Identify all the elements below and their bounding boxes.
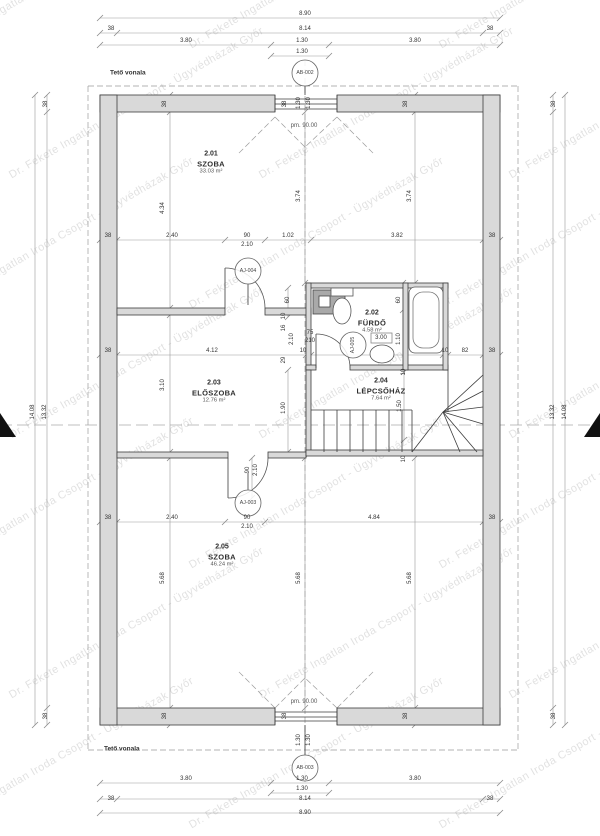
dimension-label: 90 xyxy=(245,467,251,474)
room-name: LÉPCSŐHÁZ xyxy=(357,386,406,395)
dimension-label: 3.74 xyxy=(296,190,302,202)
dimension-label: 10 xyxy=(281,313,287,320)
dimension-label: 1.02 xyxy=(282,233,294,239)
room-area: 7.64 m² xyxy=(357,395,406,402)
dimension-label: 210 xyxy=(305,338,315,344)
dimension-label: 1.30 xyxy=(296,97,302,109)
dimension-label: 1.30 xyxy=(306,97,312,109)
dimension-label: 38 xyxy=(489,233,496,239)
dimension-label: 1.90 xyxy=(281,402,287,414)
room-area: 33.03 m² xyxy=(197,168,225,175)
room-number: 2.02 xyxy=(358,309,386,318)
level-label: pm. 90.00 xyxy=(291,699,318,705)
dimension-label: 1.30 xyxy=(296,734,302,746)
dimension-label: 38 xyxy=(282,101,288,108)
dimension-label: 14.08 xyxy=(562,404,568,419)
floor-plan-page: { "title": "Emeleti alaprajz", "watermar… xyxy=(0,0,600,836)
room-label-2-04: 2.04LÉPCSŐHÁZ7.64 m² xyxy=(357,377,406,402)
dimension-label: 38 xyxy=(489,515,496,521)
dimension-label: 3.80 xyxy=(409,776,421,782)
dimension-label: 3.00 xyxy=(375,335,387,341)
dimension-label: 5.68 xyxy=(296,572,302,584)
room-label-2-02: 2.02FÜRDŐ4.58 m² xyxy=(358,309,386,334)
dimension-label: 38 xyxy=(403,101,409,108)
dimension-label: 60 xyxy=(396,297,402,304)
dimension-label: 3.82 xyxy=(391,233,403,239)
dimension-label: 2.10 xyxy=(253,464,259,476)
dimension-label: 38 xyxy=(105,233,112,239)
dimension-label: 3.74 xyxy=(407,190,413,202)
dimension-label: 38 xyxy=(282,713,288,720)
dimension-label: 3.80 xyxy=(180,776,192,782)
dimension-label: 38 xyxy=(108,796,115,802)
tag-label: AB-003 xyxy=(296,765,313,771)
room-number: 2.01 xyxy=(197,150,225,159)
dimension-label: 1.30 xyxy=(306,734,312,746)
dimension-label: 8.90 xyxy=(299,810,311,816)
room-number: 2.03 xyxy=(192,379,236,388)
dimension-label: 75 xyxy=(307,330,314,336)
dimension-label: 3.80 xyxy=(180,38,192,44)
dimension-label: 1.30 xyxy=(296,49,308,55)
dimension-label: 38 xyxy=(105,348,112,354)
dimension-label: 38 xyxy=(105,515,112,521)
dimension-label: 8.90 xyxy=(299,11,311,17)
dimension-label: 38 xyxy=(551,713,557,720)
dimension-label: 2.10 xyxy=(241,524,253,530)
dimension-label: 10 xyxy=(300,348,307,354)
dimension-label: 10 xyxy=(442,348,449,354)
dimension-label: 5.68 xyxy=(160,572,166,584)
dimension-label: 38 xyxy=(487,796,494,802)
dimension-label: 82 xyxy=(462,348,469,354)
dimension-label: 1.30 xyxy=(296,786,308,792)
dimension-label: 38 xyxy=(162,713,168,720)
room-label-2-01: 2.01SZOBA33.03 m² xyxy=(197,150,225,175)
dimension-label: 29 xyxy=(281,357,287,364)
dimension-label: 38 xyxy=(551,101,557,108)
dimension-label: 3.80 xyxy=(409,38,421,44)
dimension-label: 4.12 xyxy=(206,348,218,354)
dimension-label: 10 xyxy=(401,369,407,376)
room-number: 2.04 xyxy=(357,377,406,386)
tag-label: AJ-003 xyxy=(240,500,256,506)
room-label-2-05: 2.05SZOBA46.24 m² xyxy=(208,543,236,568)
dimension-label: 90 xyxy=(244,233,251,239)
room-number: 2.05 xyxy=(208,543,236,552)
level-label: pm. 90.00 xyxy=(291,123,318,129)
room-area: 46.24 m² xyxy=(208,561,236,568)
dimension-label: 14.08 xyxy=(30,404,36,419)
dimension-label: 3.10 xyxy=(160,379,166,391)
dimension-label: 38 xyxy=(487,26,494,32)
dimension-label: 1.10 xyxy=(396,333,402,345)
dimension-label: 13.32 xyxy=(42,404,48,419)
dimension-label: 60 xyxy=(285,297,291,304)
dimension-label: 5.68 xyxy=(407,572,413,584)
dimension-label: 38 xyxy=(43,101,49,108)
dimension-label: 10 xyxy=(401,456,407,463)
room-name: ELŐSZOBA xyxy=(192,388,236,397)
room-name: SZOBA xyxy=(208,552,236,561)
dimension-label: 38 xyxy=(162,101,168,108)
room-label-2-03: 2.03ELŐSZOBA12.76 m² xyxy=(192,379,236,404)
dimension-label: 90 xyxy=(244,515,251,521)
dimension-label: 13.32 xyxy=(550,404,556,419)
dimension-label: 38 xyxy=(489,348,496,354)
dimension-label: 38 xyxy=(43,713,49,720)
room-area: 4.58 m² xyxy=(358,327,386,334)
dimension-label: 2.10 xyxy=(289,333,295,345)
dimension-label: 2.10 xyxy=(241,242,253,248)
dimension-label: 2.40 xyxy=(166,233,178,239)
room-name: FÜRDŐ xyxy=(358,318,386,327)
dimension-label: 2.40 xyxy=(166,515,178,521)
roof-line-label: Tető vonala xyxy=(110,70,146,77)
dimension-label: 38 xyxy=(403,713,409,720)
dimension-label: 1.30 xyxy=(296,776,308,782)
room-area: 12.76 m² xyxy=(192,397,236,404)
tag-label: AJ-004 xyxy=(240,268,256,274)
dimension-label: 16 xyxy=(281,325,287,332)
tag-label: AJ-005 xyxy=(350,337,356,353)
roof-line-label: Tető vonala xyxy=(104,746,140,753)
dimension-label: 1.30 xyxy=(296,38,308,44)
tag-label: AB-002 xyxy=(296,70,313,76)
dimension-label: 4.34 xyxy=(160,202,166,214)
dimension-label: 8.14 xyxy=(299,796,311,802)
room-name: SZOBA xyxy=(197,159,225,168)
label-layer: 8.90388.14383.801.303.801.303.801.303.80… xyxy=(0,0,600,836)
dimension-label: 38 xyxy=(108,26,115,32)
dimension-label: 8.14 xyxy=(299,26,311,32)
dimension-label: 4.84 xyxy=(368,515,380,521)
floor-plan: Dr. Fekete Ingatlan Iroda Csoport - Ügyv… xyxy=(0,0,600,836)
